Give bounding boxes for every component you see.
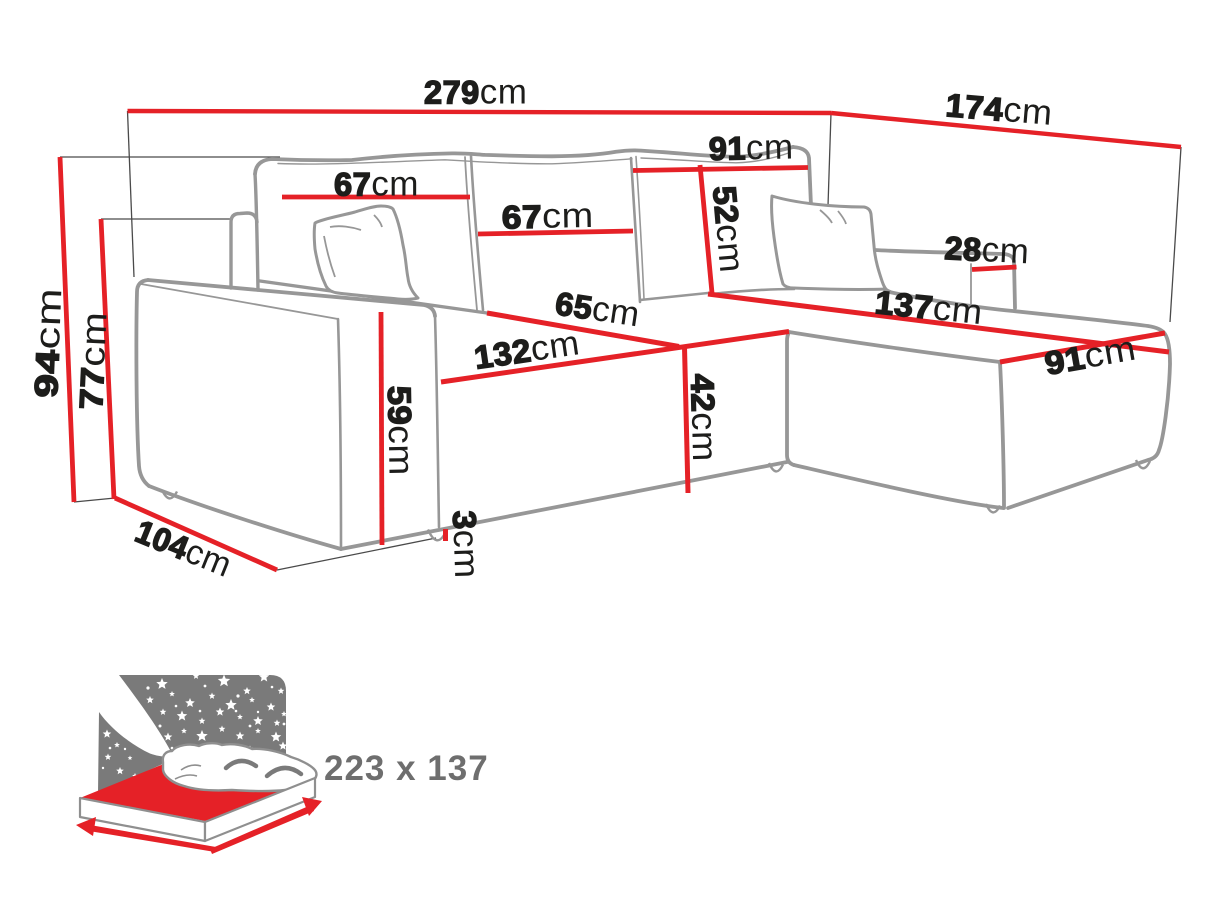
svg-text:77cm: 77cm — [71, 311, 115, 411]
svg-text:94cm: 94cm — [26, 287, 69, 398]
svg-text:67cm: 67cm — [334, 165, 419, 204]
svg-text:59cm: 59cm — [380, 385, 421, 476]
svg-text:42cm: 42cm — [683, 373, 724, 462]
svg-text:279cm: 279cm — [424, 73, 527, 112]
svg-text:3cm: 3cm — [445, 510, 486, 579]
svg-text:91cm: 91cm — [708, 128, 793, 168]
svg-text:223 x 137: 223 x 137 — [324, 749, 489, 788]
svg-text:28cm: 28cm — [944, 228, 1031, 271]
svg-text:67cm: 67cm — [501, 196, 594, 237]
